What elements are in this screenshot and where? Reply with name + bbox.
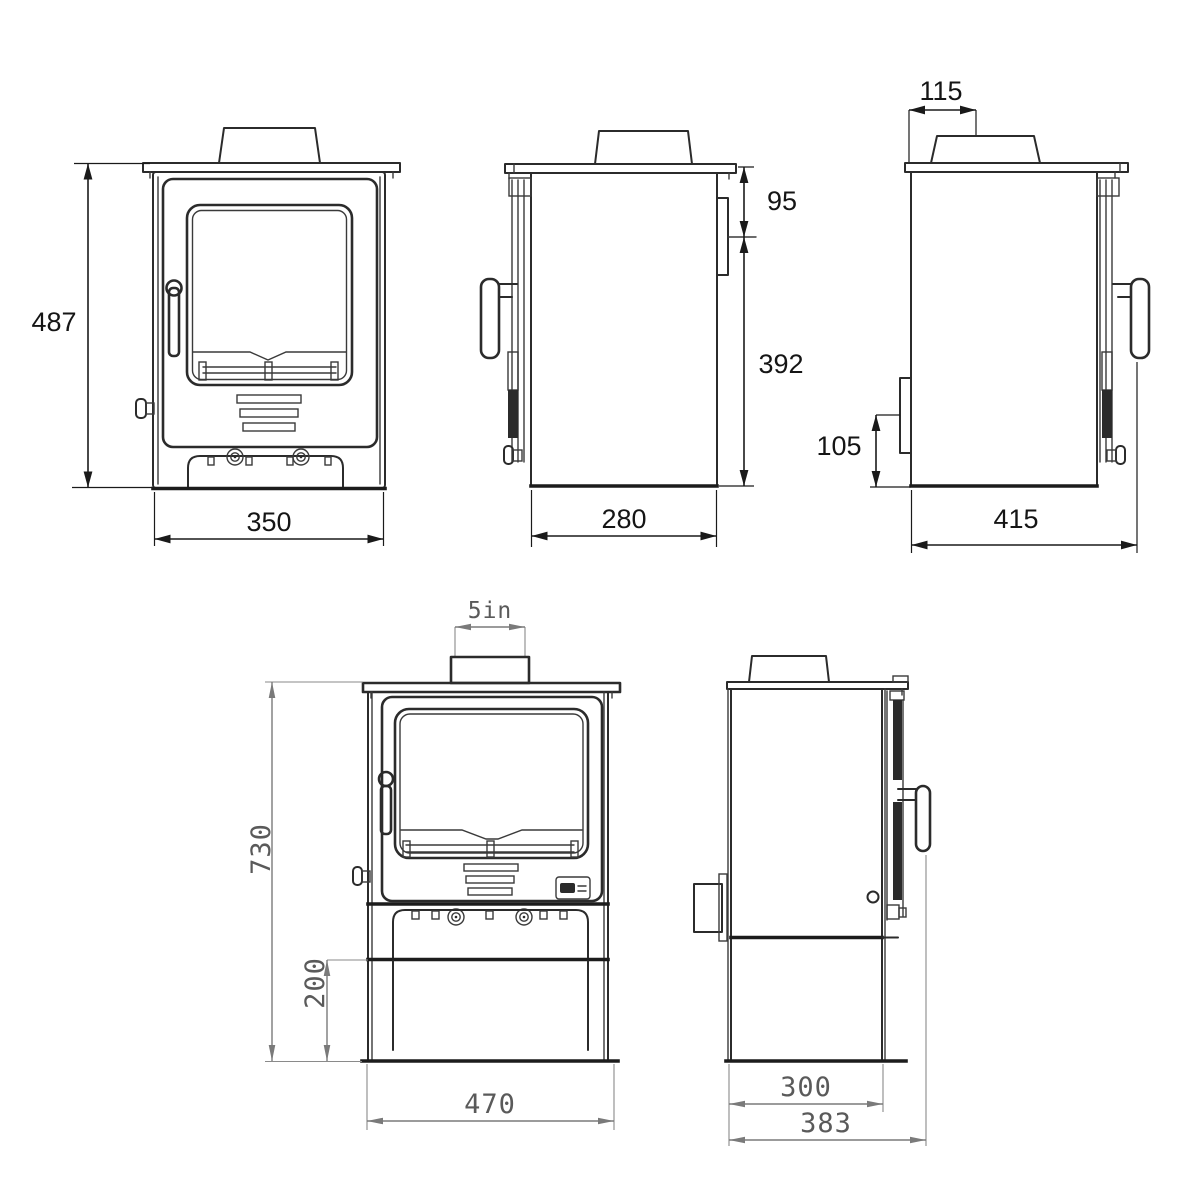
air-vent-slats [237, 395, 301, 431]
stove-body [531, 173, 717, 486]
dimension-flue-center-115: 115 [909, 76, 976, 163]
dim-label-105: 105 [816, 431, 861, 461]
latch-knob [1107, 446, 1125, 464]
door-window [395, 709, 588, 858]
flue-collar [749, 656, 829, 682]
top-plate [505, 164, 736, 173]
front-view-logstore-stove: 5in [246, 598, 620, 1130]
flue-collar [451, 657, 529, 683]
rear-air-inlet [900, 378, 911, 453]
door-handle [1113, 279, 1149, 358]
rear-air-inlet [694, 874, 727, 941]
top-plate [905, 163, 1128, 172]
dim-label-730: 730 [246, 823, 277, 875]
latch-knob [868, 892, 879, 903]
door-window [187, 205, 352, 385]
dim-label-300: 300 [780, 1072, 832, 1103]
body-sides [731, 689, 882, 1060]
air-vent-slats [464, 864, 518, 895]
ash-lip-panel [188, 456, 343, 489]
dimension-width-350: 350 [155, 492, 384, 546]
dim-label-487: 487 [31, 307, 76, 337]
door-handle [169, 288, 179, 356]
window-bottom-edge [193, 352, 346, 360]
ash-lip-panel [393, 910, 588, 960]
top-plate [363, 683, 620, 692]
technical-drawing: 487 350 [0, 0, 1200, 1200]
dimension-flue-offset-95: 95 392 [719, 167, 804, 486]
dim-label-5in: 5in [468, 598, 513, 624]
door-edge-profile [887, 691, 904, 920]
dimension-width-470: 470 [367, 1064, 614, 1130]
log-retainer-bar [406, 845, 574, 852]
side-view-logstore-stove: 300 383 [694, 656, 930, 1146]
flue-collar [931, 136, 1040, 163]
logstore-opening [393, 961, 588, 1050]
dim-label-95: 95 [767, 186, 797, 216]
door-edge-profile [508, 178, 531, 462]
top-plate [727, 682, 908, 689]
stove-body [911, 172, 1097, 486]
rear-side-view-small-stove: 115 105 415 [816, 76, 1149, 553]
stove-dimension-drawing: 487 350 [0, 0, 1200, 1200]
dim-label-200: 200 [300, 957, 331, 1009]
dim-label-383: 383 [800, 1108, 852, 1139]
flue-collar [219, 128, 320, 163]
window-bottom-edge [401, 830, 582, 839]
front-view-small-stove: 487 350 [31, 128, 400, 546]
brand-badge [556, 877, 590, 899]
rear-flue-outlet [717, 198, 728, 275]
air-control-knob [353, 867, 362, 885]
log-retainer-bar [203, 367, 336, 373]
top-plate [143, 163, 400, 172]
latch-knob [504, 446, 522, 464]
dim-label-470: 470 [464, 1089, 516, 1120]
dimension-flue-5in: 5in [455, 598, 525, 657]
side-view-small-stove: 95 392 280 [481, 131, 804, 547]
ash-lip-tabs [412, 911, 567, 919]
dimension-inlet-height-105: 105 [816, 415, 900, 487]
dim-label-115: 115 [919, 76, 962, 106]
dim-label-392: 392 [758, 349, 803, 379]
dimension-depth-280: 280 [532, 490, 717, 547]
dimension-height-487: 487 [31, 164, 152, 488]
dim-label-415: 415 [993, 504, 1038, 534]
dim-label-280: 280 [601, 504, 646, 534]
dim-label-350: 350 [246, 507, 291, 537]
air-control-knob [136, 399, 146, 418]
dimension-store-height-200: 200 [300, 957, 368, 1061]
door-edge-profile [1097, 178, 1119, 462]
flue-collar [595, 131, 692, 164]
stove-door [163, 179, 377, 447]
